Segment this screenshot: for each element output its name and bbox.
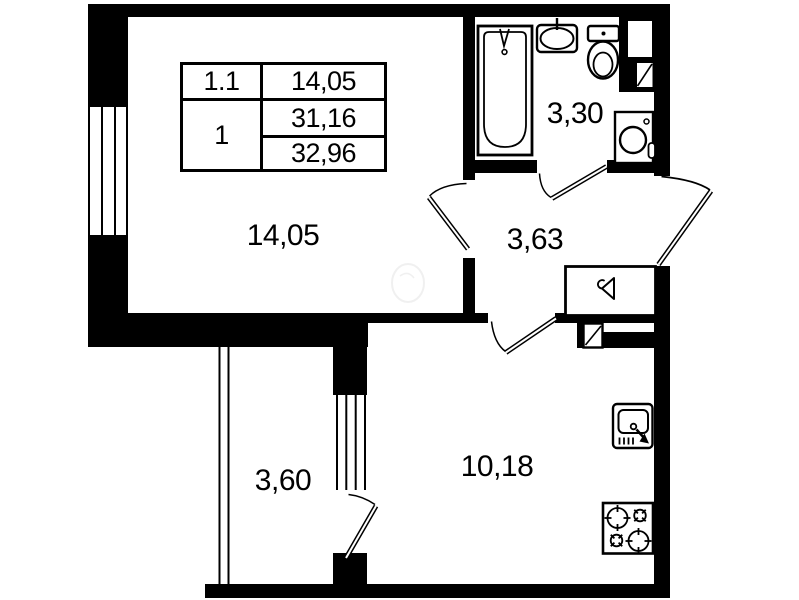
toilet-icon (588, 26, 619, 79)
room-count-cell: 1 (183, 98, 260, 169)
wardrobe (566, 267, 656, 316)
total-area-cell: 32,96 (260, 135, 384, 169)
kitchen-area-label: 10,18 (461, 450, 534, 483)
living-area-cell: 14,05 (260, 65, 384, 98)
wall-living-hall-lower (463, 258, 475, 313)
hallway-area-label: 3,63 (507, 223, 563, 256)
wall-bathroom-bottom-left (463, 160, 537, 173)
bathroom-area-label: 3,30 (547, 97, 603, 130)
wall-shaft-bar (602, 332, 655, 348)
balcony-area-label: 3,60 (255, 464, 311, 497)
wall-right-upper (654, 4, 670, 176)
floor-plan: 14,05 3,30 3,63 3,60 10,18 1.1 14,05 1 3… (0, 0, 799, 600)
wall-living-bottom (88, 313, 368, 347)
wall-left-upper (88, 17, 128, 107)
apartment-info-table: 1.1 14,05 1 31,16 32,96 (180, 62, 387, 172)
bathtub-icon (478, 26, 532, 155)
wall-hall-kitchen-left (368, 313, 488, 323)
wall-balcony-right-top (333, 347, 367, 395)
wall-balcony-right-bottom (333, 553, 367, 590)
area-without-balcony-cell: 31,16 (260, 98, 384, 135)
living-room-area-label: 14,05 (247, 219, 320, 252)
apartment-number-cell: 1.1 (183, 65, 260, 98)
stove-icon (603, 503, 653, 554)
washing-machine-icon (615, 112, 655, 163)
wall-living-hall-upper (463, 17, 475, 180)
wall-top (88, 4, 670, 17)
floor-plan-svg: 14,05 3,30 3,63 3,60 10,18 (0, 0, 799, 600)
washing-machine-handle (649, 143, 656, 158)
toilet-bowl (588, 42, 618, 79)
wall-bottom (205, 584, 670, 598)
kitchen-sink-icon (613, 404, 653, 448)
duct-box (627, 20, 653, 58)
vent-shaft-hall-icon (584, 324, 603, 348)
